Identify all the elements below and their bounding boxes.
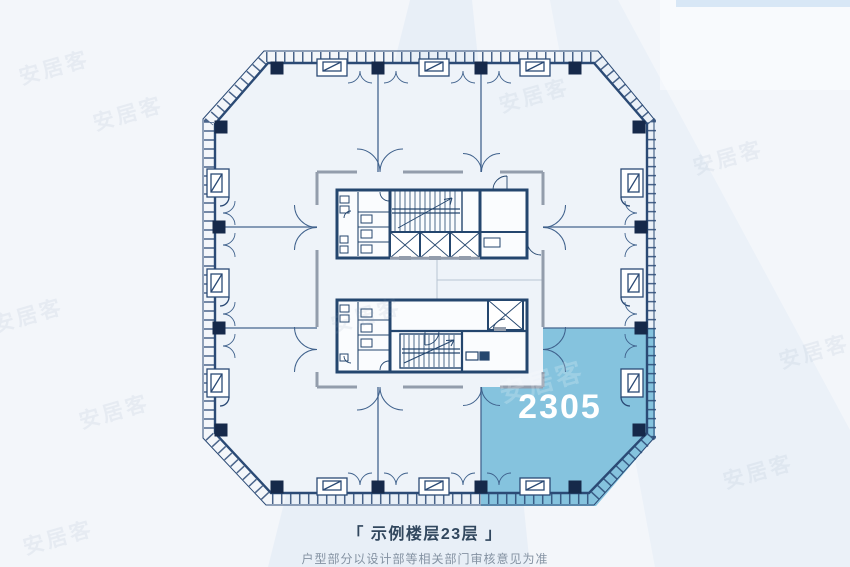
floor-caption-title: 「 示例楼层23层 」 [0,520,850,544]
floor-plan-svg: 2305 [0,0,850,567]
elevator-lower [488,300,523,331]
floor-caption-subtitle: 户型部分以设计部等相关部门审核意见为准 [0,550,850,567]
light-glow [660,0,850,90]
unit-2305-label[interactable]: 2305 [518,388,602,426]
top-right-strip [676,0,850,7]
caption-block: 「 示例楼层23层 」 户型部分以设计部等相关部门审核意见为准 [0,520,850,567]
core-lower-block [337,300,527,372]
elevators-upper [390,232,480,260]
core-upper-block [337,176,541,260]
floorplan-page: 2305 安居客 安居客 安居客 安居客 安居客 安居客 安居客 安居客 安居客… [0,0,850,567]
